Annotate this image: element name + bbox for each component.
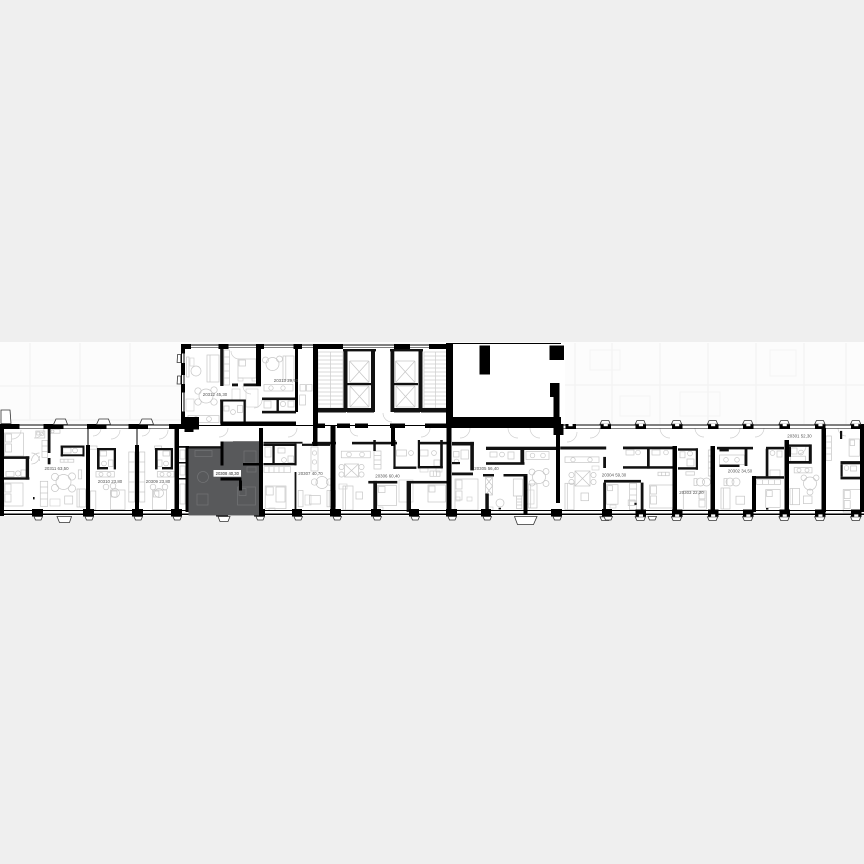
svg-text:20306 60,40: 20306 60,40 (375, 474, 400, 479)
svg-text:20307 40,70: 20307 40,70 (298, 471, 323, 476)
svg-text:20308 40,30: 20308 40,30 (216, 471, 240, 476)
svg-text:20313 29,90: 20313 29,90 (274, 378, 299, 383)
svg-text:20303 22,20: 20303 22,20 (679, 490, 704, 495)
svg-text:20301 52,30: 20301 52,30 (787, 434, 812, 439)
svg-text:20312 45,30: 20312 45,30 (203, 392, 228, 397)
svg-text:20305 56,40: 20305 56,40 (474, 466, 499, 471)
svg-text:20304 59,30: 20304 59,30 (602, 473, 627, 478)
svg-text:20309 23,80: 20309 23,80 (146, 479, 171, 484)
svg-text:20311 63,50: 20311 63,50 (44, 466, 69, 471)
svg-text:20302 34,50: 20302 34,50 (728, 469, 753, 474)
svg-text:20310 23,80: 20310 23,80 (98, 479, 123, 484)
